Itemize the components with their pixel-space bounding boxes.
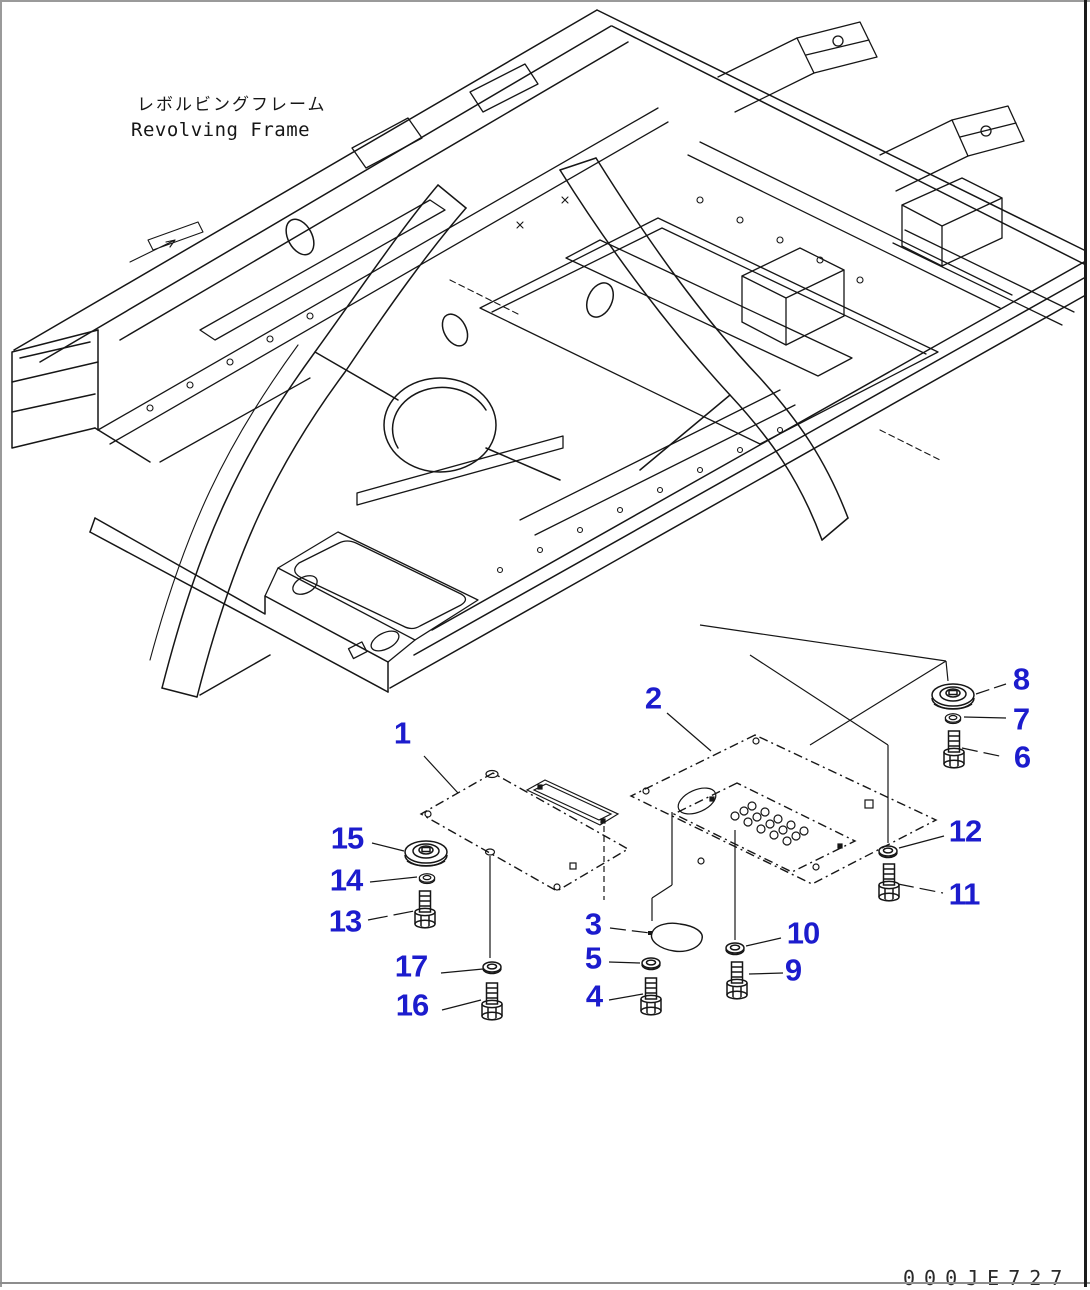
bolt-6 — [944, 731, 964, 768]
washer-17 — [483, 962, 501, 974]
cover-plate-2 — [631, 735, 936, 884]
cross-beams — [352, 22, 1024, 191]
bolt-4 — [641, 978, 661, 1015]
diagram-title-japanese: レボルビングフレーム — [137, 90, 327, 115]
callout-15: 15 — [331, 823, 363, 854]
sheet-border-bottom — [0, 1282, 1090, 1284]
diagram-title-english: Revolving Frame — [131, 119, 327, 141]
bolt-9 — [727, 962, 747, 999]
callout-9: 9 — [785, 955, 801, 986]
cushion-15 — [405, 841, 447, 866]
callout-7: 7 — [1013, 704, 1029, 735]
boom-mount — [150, 158, 848, 697]
callout-6: 6 — [1014, 742, 1030, 773]
revolving-frame-diagram — [0, 0, 1090, 1287]
callout-4: 4 — [586, 981, 602, 1012]
left-sponson — [12, 330, 150, 532]
sheet-border-right — [1084, 0, 1087, 1287]
drawing-number: 000JE727 — [903, 1266, 1071, 1290]
leader-lines — [368, 684, 1006, 1010]
washer-7 — [945, 714, 960, 724]
washer-14 — [419, 874, 434, 884]
washer-10 — [726, 943, 744, 955]
seal-3 — [648, 923, 702, 951]
fastener-parts — [405, 684, 974, 1020]
sheet-border-top — [0, 0, 1090, 2]
callout-3: 3 — [585, 909, 601, 940]
bolt-16 — [482, 983, 502, 1020]
callout-10: 10 — [787, 918, 819, 949]
center-platform — [480, 218, 938, 444]
callout-13: 13 — [329, 906, 361, 937]
washer-12 — [879, 846, 897, 858]
callout-1: 1 — [394, 718, 410, 749]
callout-14: 14 — [330, 865, 362, 896]
callout-11: 11 — [949, 879, 980, 910]
parts-catalog-page: { "title": { "jp": "レボルビングフレーム", "en": "… — [0, 0, 1090, 1287]
sheet-border-left — [0, 0, 2, 1287]
callout-2: 2 — [645, 683, 661, 714]
title-block: レボルビングフレーム Revolving Frame — [137, 90, 327, 141]
callout-12: 12 — [949, 816, 981, 847]
cushion-8 — [932, 684, 974, 709]
washer-5 — [642, 958, 660, 970]
callout-17: 17 — [395, 951, 427, 982]
callout-16: 16 — [396, 990, 428, 1021]
deck-rails — [98, 108, 1074, 535]
callout-5: 5 — [585, 943, 601, 974]
callout-8: 8 — [1013, 664, 1029, 695]
deck-detail-holes — [130, 197, 940, 573]
bolt-13 — [415, 891, 435, 928]
cover-plate-1 — [421, 771, 628, 892]
bolt-11 — [879, 864, 899, 901]
